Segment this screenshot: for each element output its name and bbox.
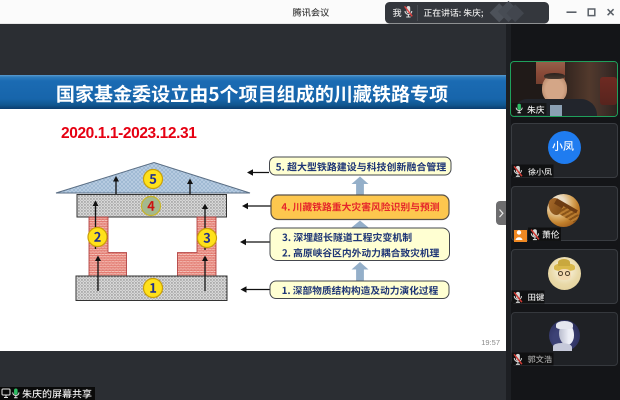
svg-text:2020.1.1-2023.12.31: 2020.1.1-2023.12.31 — [61, 125, 197, 142]
svg-text:19:57: 19:57 — [481, 338, 500, 347]
